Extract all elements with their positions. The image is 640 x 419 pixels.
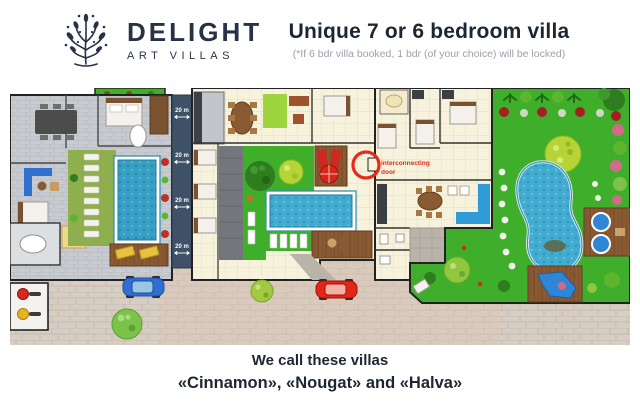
terrace [410,228,445,263]
caption-block: We call these villas «Cinnamon», «Nougat… [0,352,640,393]
distance-label: 20 m [175,198,189,204]
floor-plan: 20 m 20 m 20 m 20 m [10,88,630,345]
paving-tree [112,309,142,339]
caption-line1: We call these villas [0,352,640,369]
scooter-parking [10,283,48,330]
distance-label: 20 m [175,244,189,250]
parasol-deck [315,146,347,186]
bed [106,98,142,126]
bedrooms [194,150,216,233]
courtyard-path [219,146,243,260]
driveway-strip: 20 m 20 m 20 m 20 m [172,95,192,268]
annotation-line1: interconnecting [381,160,430,167]
page: DELIGHT ART VILLAS Unique 7 or 6 bedroom… [0,0,640,419]
distance-label: 20 m [175,153,189,159]
pool-cinnamon [114,156,160,244]
caption-line2: «Cinnamon», «Nougat» and «Halva» [0,374,640,393]
brand-tagline: ART VILLAS [127,50,262,62]
brand-name: DELIGHT [127,19,262,45]
header-block: Unique 7 or 6 bedroom villa (*If 6 bdr v… [268,20,590,60]
floor-plan-svg: 20 m 20 m 20 m 20 m [10,88,630,345]
slide-deck [528,266,582,302]
page-subtitle: (*If 6 bdr villa booked, 1 bdr (of your … [268,48,590,60]
brand-block: DELIGHT ART VILLAS [127,19,262,62]
page-title: Unique 7 or 6 bedroom villa [268,20,590,44]
spa-deck [584,208,630,256]
brand-tree-icon [60,12,112,68]
jacuzzi [592,235,610,253]
blue-car [123,276,164,298]
pool-deck [312,231,372,258]
pool-nougat [266,191,356,231]
jacuzzi [592,213,610,231]
lawn-tree [444,257,470,283]
red-car [316,279,357,300]
distance-label: 20 m [175,108,189,114]
paving-tree [251,280,273,302]
villa-nougat [192,88,375,280]
annotation-line2: door [381,169,396,176]
